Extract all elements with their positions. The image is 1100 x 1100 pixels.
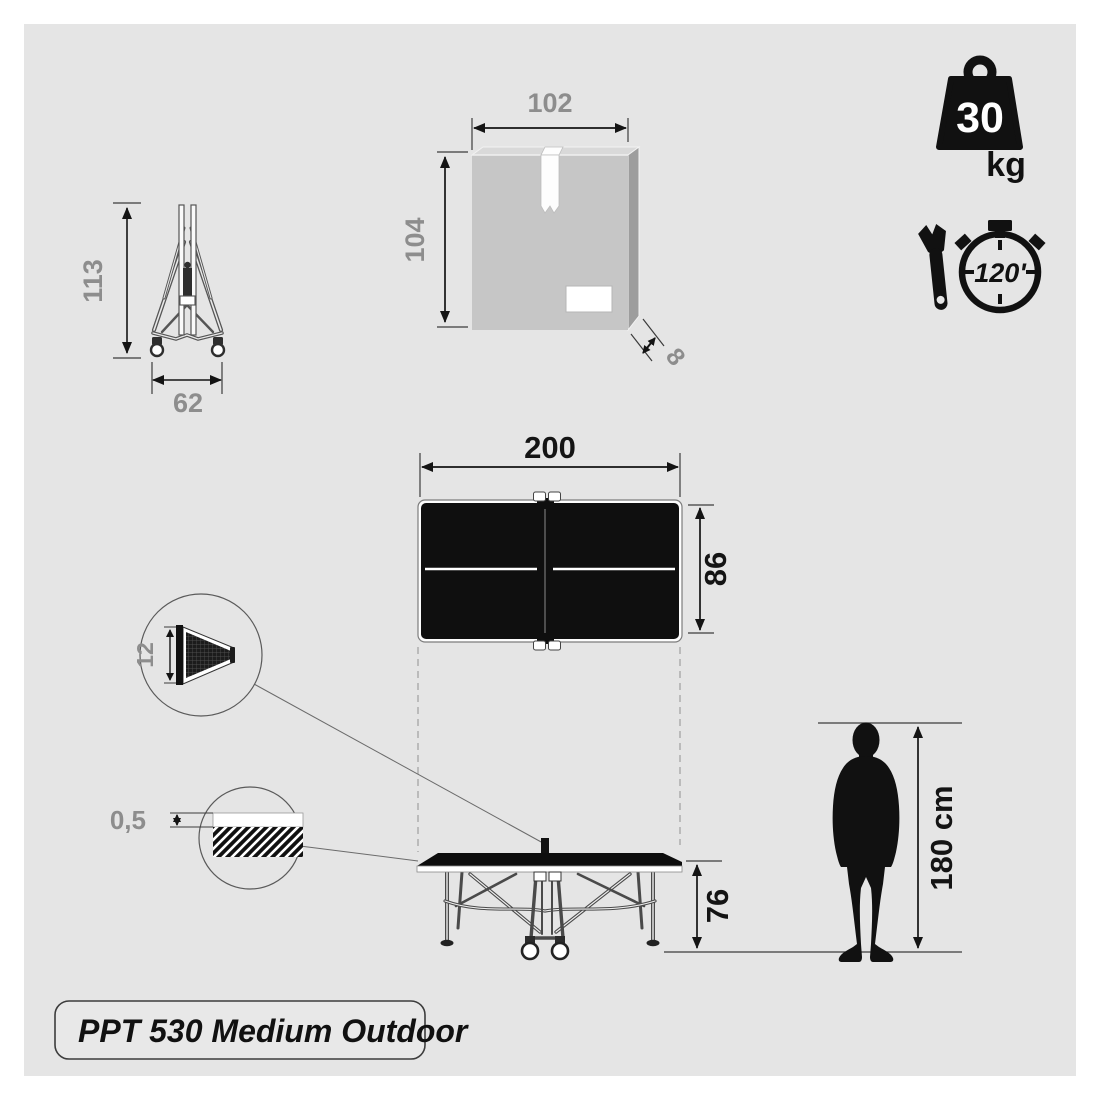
table-length-label: 200 bbox=[524, 430, 576, 465]
net-height-label: 12 bbox=[132, 642, 158, 668]
spec-drawing: 113 62 102 bbox=[0, 0, 1100, 1100]
person-height-label: 180 cm bbox=[924, 785, 959, 890]
box-width-label: 102 bbox=[527, 88, 572, 118]
folded-height-label: 113 bbox=[78, 259, 108, 303]
table-width-label: 86 bbox=[698, 552, 733, 586]
top-thickness-label: 0,5 bbox=[110, 805, 146, 835]
box-height-label: 104 bbox=[400, 217, 430, 262]
product-spec-sheet: 113 62 102 bbox=[0, 0, 1100, 1100]
weight-unit: kg bbox=[986, 146, 1026, 184]
product-title: PPT 530 Medium Outdoor bbox=[78, 1013, 469, 1049]
folded-width-label: 62 bbox=[173, 388, 203, 418]
weight-value: 30 bbox=[956, 94, 1004, 142]
table-height-label: 76 bbox=[700, 889, 735, 923]
assembly-time-value: 120' bbox=[974, 258, 1027, 288]
product-title-box: PPT 530 Medium Outdoor bbox=[55, 1001, 469, 1059]
